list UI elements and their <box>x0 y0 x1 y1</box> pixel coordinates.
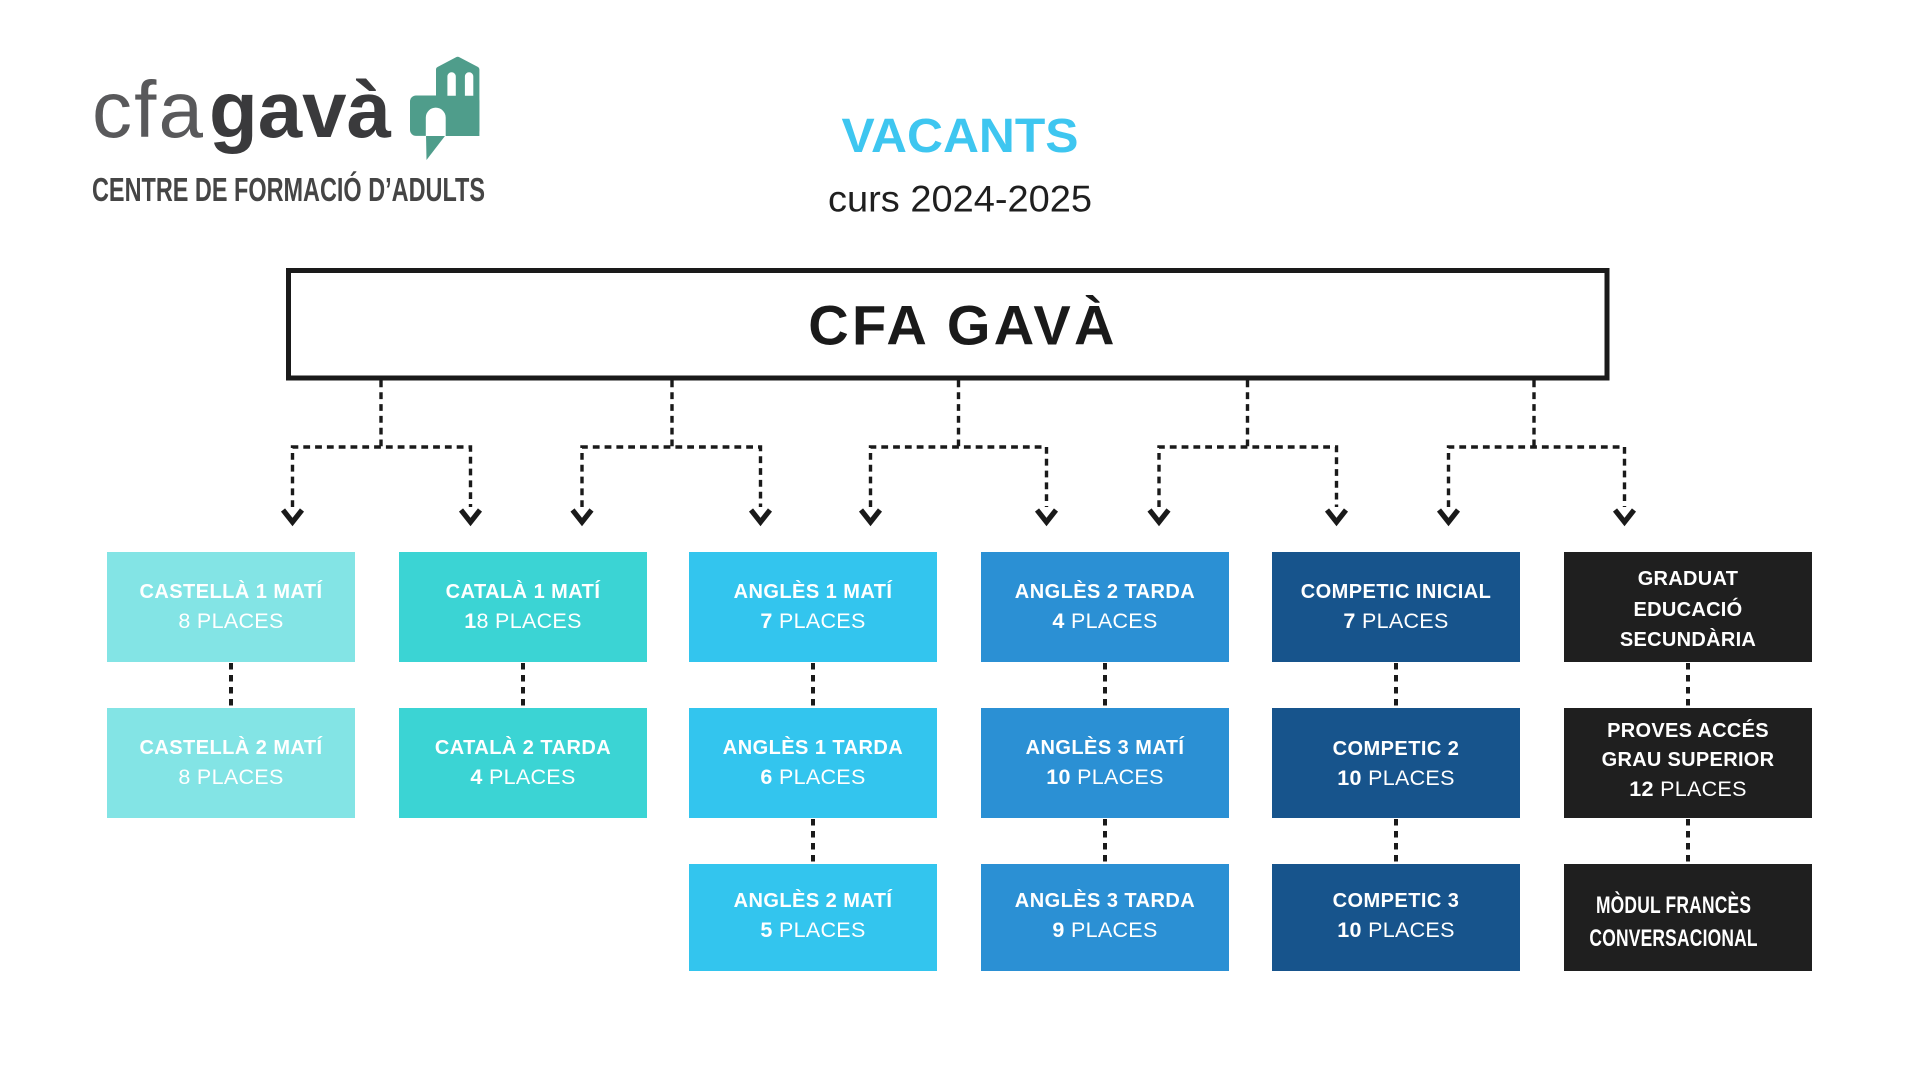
svg-text:CENTRE DE FORMACIÓ D’ADULTS: CENTRE DE FORMACIÓ D’ADULTS <box>92 171 485 208</box>
svg-text:VACANTS: VACANTS <box>842 110 1079 163</box>
svg-text:gavà: gavà <box>209 65 392 154</box>
svg-text:cfa: cfa <box>92 65 204 154</box>
svg-text:curs 2024-2025: curs 2024-2025 <box>828 178 1092 220</box>
svg-text:CFA GAVÀ: CFA GAVÀ <box>808 294 1118 357</box>
